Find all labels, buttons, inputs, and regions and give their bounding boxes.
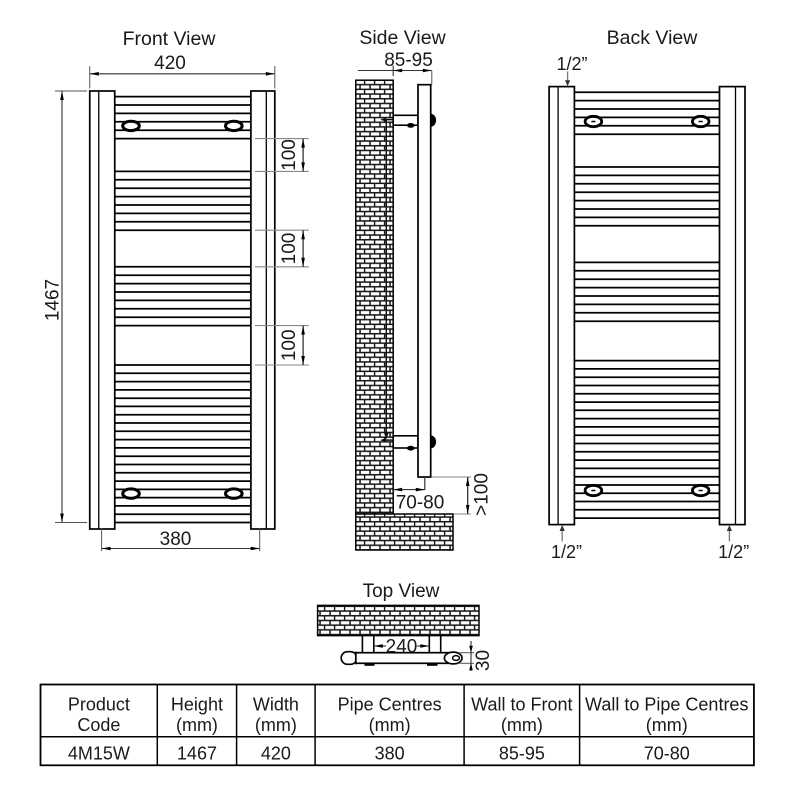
- svg-text:Wall to Pipe Centres: Wall to Pipe Centres: [585, 695, 748, 715]
- svg-text:Wall to Front: Wall to Front: [471, 695, 572, 715]
- svg-text:Width: Width: [253, 695, 299, 715]
- svg-text:Height: Height: [171, 695, 223, 715]
- svg-text:Top View: Top View: [363, 581, 440, 602]
- svg-text:70-80: 70-80: [644, 744, 690, 764]
- svg-text:420: 420: [154, 53, 186, 74]
- svg-text:85-95: 85-95: [499, 744, 545, 764]
- svg-text:100: 100: [279, 329, 300, 361]
- svg-text:1/2”: 1/2”: [556, 54, 587, 74]
- svg-text:100: 100: [279, 233, 300, 265]
- svg-text:Product: Product: [68, 695, 130, 715]
- svg-text:(mm): (mm): [176, 715, 218, 735]
- svg-text:380: 380: [160, 529, 192, 550]
- svg-text:85-95: 85-95: [384, 50, 433, 71]
- svg-text:Back View: Back View: [607, 27, 699, 49]
- svg-text:1/2”: 1/2”: [718, 542, 749, 562]
- svg-text:Side View: Side View: [359, 27, 446, 49]
- svg-text:30: 30: [473, 650, 494, 671]
- svg-text:1/2”: 1/2”: [551, 542, 582, 562]
- svg-text:(mm): (mm): [646, 715, 688, 735]
- svg-text:1467: 1467: [43, 279, 64, 321]
- svg-text:Pipe Centres: Pipe Centres: [338, 695, 442, 715]
- svg-text:420: 420: [261, 744, 291, 764]
- svg-text:240: 240: [386, 637, 418, 658]
- svg-text:70-80: 70-80: [396, 493, 445, 514]
- svg-text:4M15W: 4M15W: [68, 744, 130, 764]
- svg-text:100: 100: [279, 139, 300, 171]
- svg-text:Code: Code: [77, 715, 120, 735]
- svg-text:(mm): (mm): [501, 715, 543, 735]
- svg-text:1467: 1467: [177, 744, 217, 764]
- svg-text:(mm): (mm): [255, 715, 297, 735]
- svg-text:>100: >100: [472, 473, 493, 516]
- svg-text:Front View: Front View: [123, 28, 217, 50]
- svg-text:(mm): (mm): [369, 715, 411, 735]
- svg-text:380: 380: [375, 744, 405, 764]
